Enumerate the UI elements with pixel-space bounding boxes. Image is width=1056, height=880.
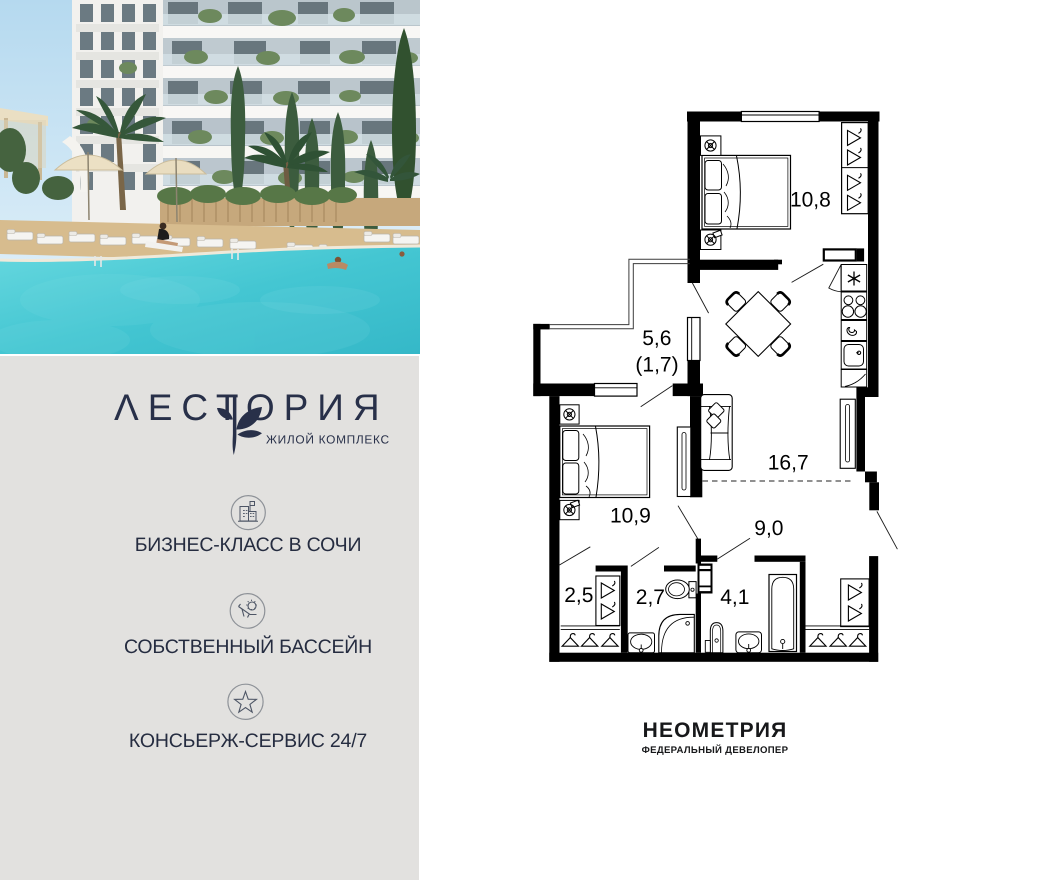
svg-text:(1,7): (1,7) (635, 353, 678, 376)
svg-text:16,7: 16,7 (768, 451, 809, 474)
svg-text:4,1: 4,1 (720, 586, 749, 609)
svg-text:9,0: 9,0 (754, 517, 783, 540)
svg-text:10,9: 10,9 (610, 505, 651, 528)
svg-text:5,6: 5,6 (642, 327, 671, 350)
svg-text:2,7: 2,7 (636, 586, 665, 609)
svg-text:10,8: 10,8 (790, 189, 831, 212)
svg-text:2,5: 2,5 (564, 584, 593, 607)
